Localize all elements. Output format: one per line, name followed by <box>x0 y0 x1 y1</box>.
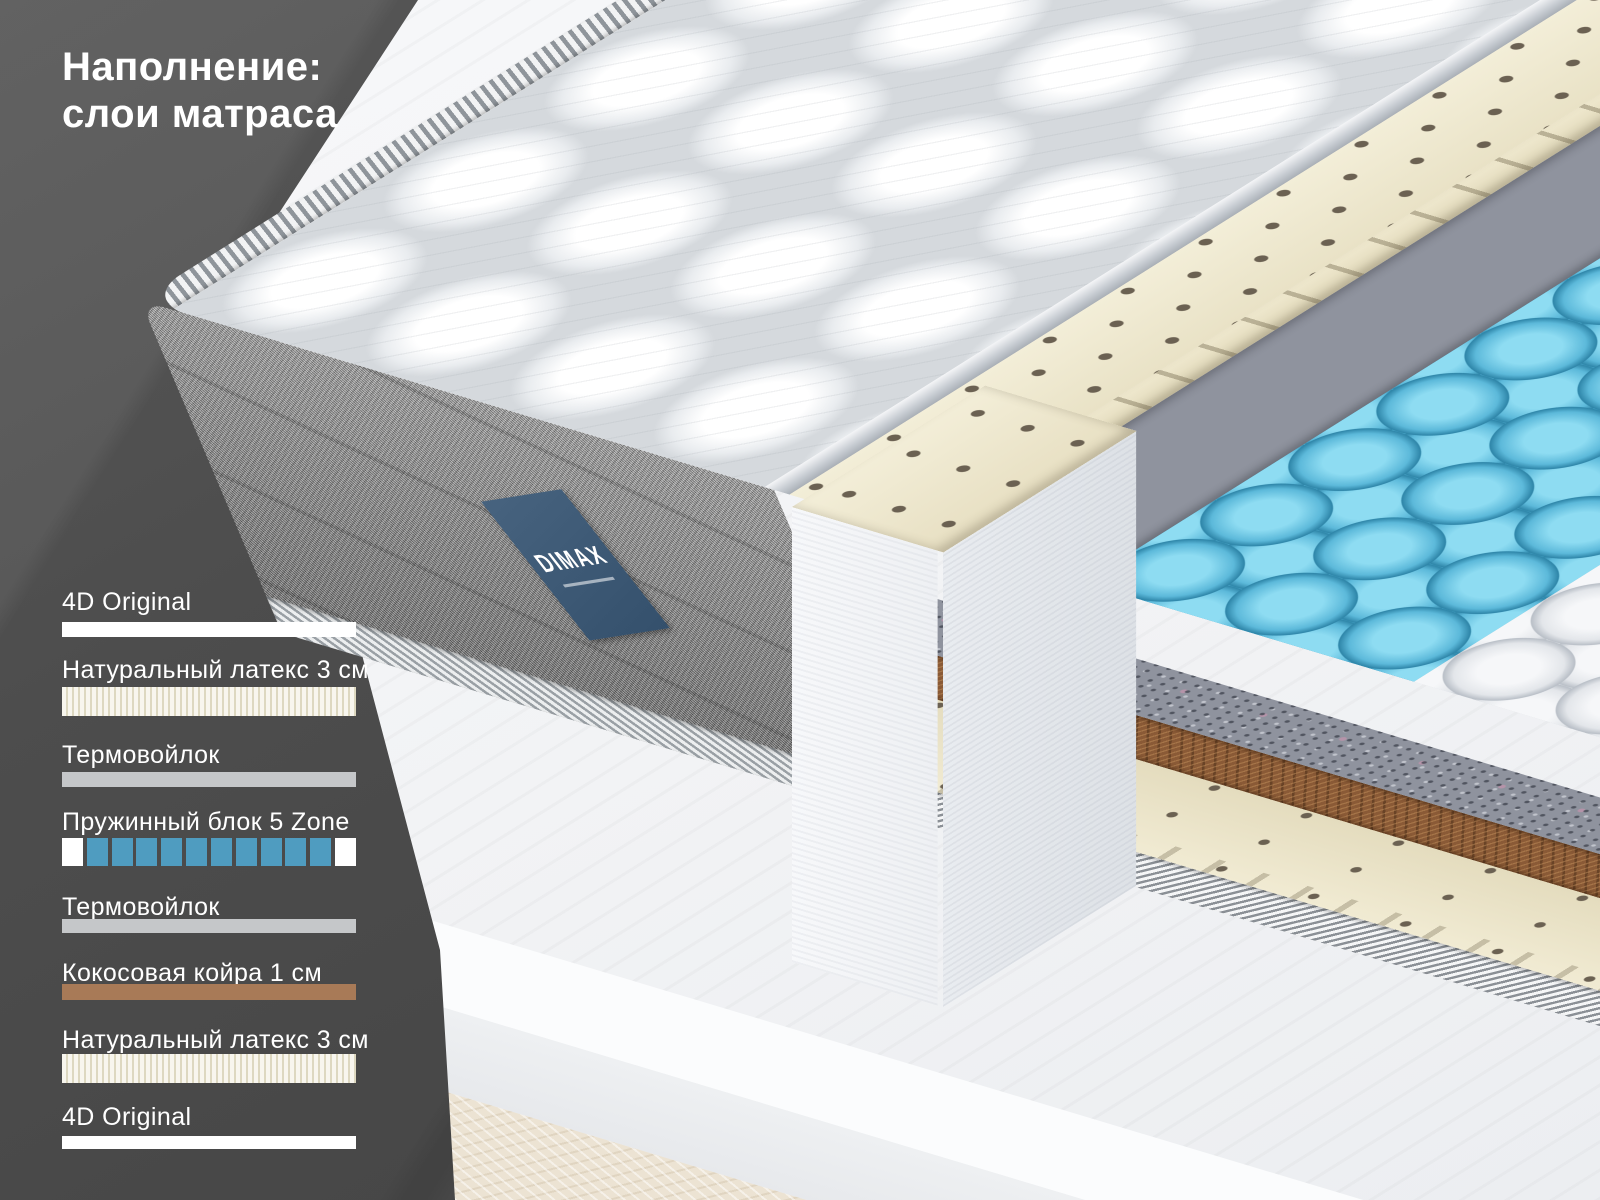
brand-logo-text: DIMAX <box>528 541 615 579</box>
spring-zone-square-blue <box>310 838 331 866</box>
layer-label: Натуральный латекс 3 см <box>62 656 369 685</box>
layer-label: Термовойлок <box>62 741 220 770</box>
foam-block-front-face <box>792 507 938 1006</box>
page-title: Наполнение: слои матраса <box>62 44 338 138</box>
mattress-layers-infographic: DIMAX Наполнение: слои матраса 4D Origin… <box>0 0 1600 1200</box>
layer-label: 4D Original <box>62 1103 191 1132</box>
spring-zone-square-blue <box>136 838 157 866</box>
page-title-line2: слои матраса <box>62 91 338 138</box>
layer-swatch-latex-cream <box>62 687 356 716</box>
layer-swatch-felt-gray <box>62 772 356 787</box>
layer-label: Термовойлок <box>62 893 220 922</box>
layer-swatch-fabric-white <box>62 622 356 637</box>
page-title-line1: Наполнение: <box>62 44 338 91</box>
spring-zone-square-blue <box>186 838 207 866</box>
layer-swatch-latex-cream <box>62 1054 356 1083</box>
spring-zone-square-blue <box>161 838 182 866</box>
layer-swatch-fabric-white <box>62 1136 356 1149</box>
spring-zone-square-blue <box>112 838 133 866</box>
layer-label: Пружинный блок 5 Zone <box>62 808 350 837</box>
layer-swatch-springs-blue <box>62 838 356 866</box>
layer-label: Натуральный латекс 3 см <box>62 1026 369 1055</box>
spring-zone-square-blue <box>285 838 306 866</box>
brand-tagline-bar <box>563 577 615 588</box>
spring-zone-square-blue <box>211 838 232 866</box>
spring-zone-square-blue <box>236 838 257 866</box>
layer-swatch-coir-brown <box>62 984 356 1000</box>
brand-tag: DIMAX <box>481 489 670 640</box>
layer-label: 4D Original <box>62 588 191 617</box>
spring-zone-square-blue <box>87 838 108 866</box>
layer-swatch-felt-gray <box>62 919 356 933</box>
spring-zone-square-blue <box>261 838 282 866</box>
spring-zone-square-white <box>335 838 356 866</box>
spring-zone-square-white <box>62 838 83 866</box>
